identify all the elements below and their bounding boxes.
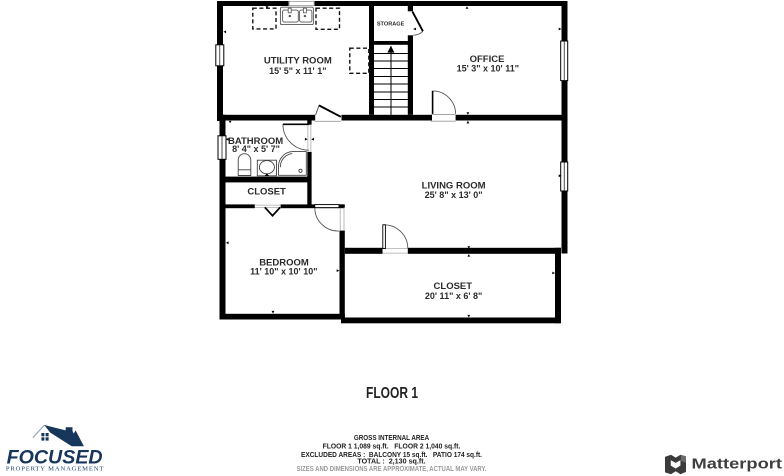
svg-text:UTILITY ROOM: UTILITY ROOM xyxy=(264,55,332,66)
svg-text:Matterport: Matterport xyxy=(692,456,783,473)
svg-text:FLOOR 1: FLOOR 1 xyxy=(366,385,418,402)
svg-text:PROPERTY MANAGEMENT: PROPERTY MANAGEMENT xyxy=(6,466,104,473)
svg-text:CLOSET: CLOSET xyxy=(247,187,286,198)
svg-text:15' 3" x 10' 11": 15' 3" x 10' 11" xyxy=(457,64,519,74)
svg-text:STORAGE: STORAGE xyxy=(377,22,405,28)
svg-text:15' 5" x 11' 1": 15' 5" x 11' 1" xyxy=(269,66,326,76)
svg-text:8' 4" x 5' 7": 8' 4" x 5' 7" xyxy=(232,144,280,154)
svg-text:20' 11" x 6' 8": 20' 11" x 6' 8" xyxy=(425,291,482,301)
svg-text:SIZES AND DIMENSIONS ARE APPRO: SIZES AND DIMENSIONS ARE APPROXIMATE, AC… xyxy=(297,464,487,473)
svg-text:11' 10" x 10' 10": 11' 10" x 10' 10" xyxy=(250,267,317,277)
svg-text:25' 8" x 13' 0": 25' 8" x 13' 0" xyxy=(425,190,483,200)
